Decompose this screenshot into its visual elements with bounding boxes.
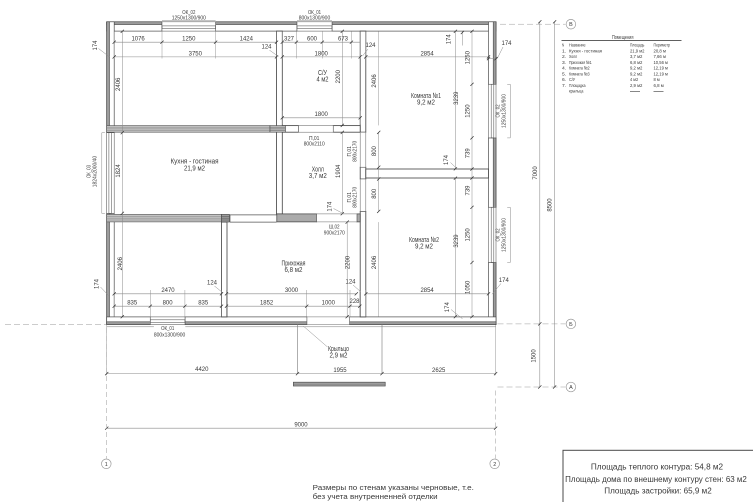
svg-text:Название: Название	[569, 43, 586, 49]
svg-text:21,9 м2: 21,9 м2	[630, 48, 645, 54]
svg-text:1076: 1076	[131, 36, 145, 43]
svg-text:1000: 1000	[322, 300, 336, 307]
svg-text:174: 174	[499, 277, 509, 284]
svg-text:Площадь теплого контура: 54,8: Площадь теплого контура: 54,8 м2	[591, 463, 724, 472]
svg-text:1050: 1050	[465, 280, 472, 294]
svg-text:6,8 м: 6,8 м	[654, 83, 665, 89]
svg-text:327: 327	[284, 36, 294, 43]
svg-text:228: 228	[350, 298, 360, 305]
svg-text:800: 800	[163, 300, 173, 307]
svg-text:835: 835	[127, 300, 137, 307]
svg-text:2625: 2625	[432, 367, 446, 374]
svg-text:2,9 м2: 2,9 м2	[630, 83, 643, 89]
svg-text:6,8 м2: 6,8 м2	[630, 60, 643, 66]
svg-text:20,8 м: 20,8 м	[654, 48, 667, 54]
svg-text:крыльца: крыльца	[569, 90, 584, 95]
svg-text:2.: 2.	[562, 54, 566, 60]
svg-text:1824х2000/40: 1824х2000/40	[93, 156, 99, 188]
svg-text:Комната №3: Комната №3	[569, 71, 590, 77]
svg-text:2406: 2406	[117, 257, 124, 271]
svg-text:без учета внутренненней отделк: без учета внутренненней отделки	[313, 492, 438, 501]
svg-text:3239: 3239	[453, 234, 460, 248]
svg-text:3000: 3000	[285, 287, 299, 294]
svg-text:8 м: 8 м	[654, 77, 661, 83]
svg-text:1250х1300/900: 1250х1300/900	[501, 218, 507, 252]
svg-text:7,66 м: 7,66 м	[654, 54, 667, 60]
svg-text:21,9 м2: 21,9 м2	[184, 163, 205, 172]
svg-text:800х2170: 800х2170	[353, 187, 359, 208]
svg-text:124: 124	[207, 279, 217, 286]
svg-text:2406: 2406	[371, 74, 378, 88]
svg-text:Площадь застройки: 65,9 м2: Площадь застройки: 65,9 м2	[604, 487, 712, 496]
svg-text:Помещения: Помещения	[612, 35, 634, 41]
svg-text:9,2 м2: 9,2 м2	[417, 98, 435, 107]
svg-text:N: N	[562, 43, 564, 49]
svg-text:Площадь: Площадь	[630, 43, 645, 49]
svg-text:С/У: С/У	[569, 77, 576, 83]
svg-text:4 м2: 4 м2	[317, 74, 329, 83]
svg-text:600: 600	[307, 36, 317, 43]
svg-text:Комната №2: Комната №2	[569, 66, 590, 72]
svg-text:3,7 м2: 3,7 м2	[309, 171, 327, 180]
svg-text:1500: 1500	[530, 349, 537, 363]
svg-text:673: 673	[338, 36, 348, 43]
svg-text:124: 124	[262, 44, 272, 51]
svg-text:1424: 1424	[240, 36, 254, 43]
svg-text:Площадка: Площадка	[569, 83, 586, 89]
svg-text:800: 800	[371, 146, 378, 156]
svg-text:124: 124	[346, 278, 356, 285]
svg-text:1904: 1904	[335, 164, 342, 178]
svg-text:1800: 1800	[315, 111, 329, 118]
svg-text:1250: 1250	[182, 36, 196, 43]
svg-text:1852: 1852	[260, 300, 274, 307]
svg-text:174: 174	[92, 40, 99, 50]
svg-text:9,2 м2: 9,2 м2	[415, 242, 433, 251]
svg-text:9000: 9000	[294, 421, 308, 428]
svg-text:174: 174	[443, 155, 450, 165]
svg-text:1.: 1.	[562, 48, 566, 54]
svg-text:3,7 м2: 3,7 м2	[630, 54, 643, 60]
svg-text:Прихожая №1: Прихожая №1	[569, 60, 592, 66]
svg-text:4420: 4420	[195, 366, 209, 373]
svg-text:2470: 2470	[161, 287, 175, 294]
svg-text:ОК_01: ОК_01	[161, 326, 174, 332]
svg-text:835: 835	[198, 300, 208, 307]
svg-text:174: 174	[502, 40, 512, 47]
svg-text:2: 2	[493, 462, 496, 468]
svg-text:Размеры по стенам указаны черн: Размеры по стенам указаны черновые, т.е.	[313, 483, 474, 492]
svg-text:174: 174	[326, 201, 333, 211]
svg-text:174: 174	[94, 279, 101, 289]
svg-text:12,19 м: 12,19 м	[654, 71, 669, 77]
svg-text:7.: 7.	[562, 83, 566, 89]
svg-text:3750: 3750	[189, 50, 203, 57]
svg-text:2,9 м2: 2,9 м2	[330, 351, 348, 360]
svg-text:2854: 2854	[420, 287, 434, 294]
svg-text:2854: 2854	[420, 50, 434, 57]
svg-text:1955: 1955	[333, 367, 347, 374]
svg-text:Кухня - гостиная: Кухня - гостиная	[569, 48, 602, 54]
svg-text:1250х1300/900: 1250х1300/900	[501, 94, 507, 128]
svg-text:9,2 м2: 9,2 м2	[630, 66, 643, 72]
svg-text:174: 174	[446, 34, 453, 44]
svg-text:800х2110: 800х2110	[304, 142, 325, 148]
svg-text:12,19 м: 12,19 м	[654, 66, 669, 72]
svg-text:5.: 5.	[562, 71, 566, 77]
svg-text:3.: 3.	[562, 60, 566, 66]
svg-text:Холл: Холл	[569, 54, 577, 60]
svg-text:6.: 6.	[562, 77, 566, 83]
svg-text:800х1300/900: 800х1300/900	[154, 333, 186, 339]
svg-text:739: 739	[465, 148, 472, 158]
svg-text:4.: 4.	[562, 66, 566, 72]
svg-text:1250: 1250	[465, 51, 472, 65]
svg-text:739: 739	[465, 185, 472, 195]
svg-text:2200: 2200	[345, 256, 352, 270]
svg-text:7000: 7000	[532, 166, 539, 180]
svg-text:1800: 1800	[315, 50, 329, 57]
svg-text:9,2 м2: 9,2 м2	[630, 71, 643, 77]
svg-text:А: А	[569, 385, 573, 391]
svg-text:8500: 8500	[547, 198, 554, 212]
svg-text:174: 174	[444, 302, 451, 312]
svg-text:800х2170: 800х2170	[353, 141, 359, 162]
svg-text:4 м2: 4 м2	[630, 77, 638, 83]
svg-text:900х2170: 900х2170	[324, 230, 345, 236]
svg-text:В: В	[569, 22, 573, 28]
svg-text:1: 1	[105, 462, 108, 468]
svg-text:2406: 2406	[115, 77, 122, 91]
svg-text:Площадь дома по внешнему конту: Площадь дома по внешнему контуру стен: 6…	[565, 475, 747, 484]
svg-text:124: 124	[366, 42, 376, 49]
svg-text:2406: 2406	[371, 256, 378, 270]
svg-text:1250: 1250	[465, 228, 472, 242]
svg-text:1250: 1250	[465, 104, 472, 118]
svg-text:Б: Б	[569, 322, 573, 328]
svg-text:2200: 2200	[335, 70, 342, 84]
svg-text:800: 800	[371, 189, 378, 199]
svg-text:10,56 м: 10,56 м	[654, 60, 669, 66]
svg-text:1824: 1824	[115, 164, 122, 178]
svg-text:Периметр: Периметр	[654, 43, 671, 49]
svg-text:3239: 3239	[453, 91, 460, 105]
svg-text:6,8 м2: 6,8 м2	[285, 265, 303, 274]
